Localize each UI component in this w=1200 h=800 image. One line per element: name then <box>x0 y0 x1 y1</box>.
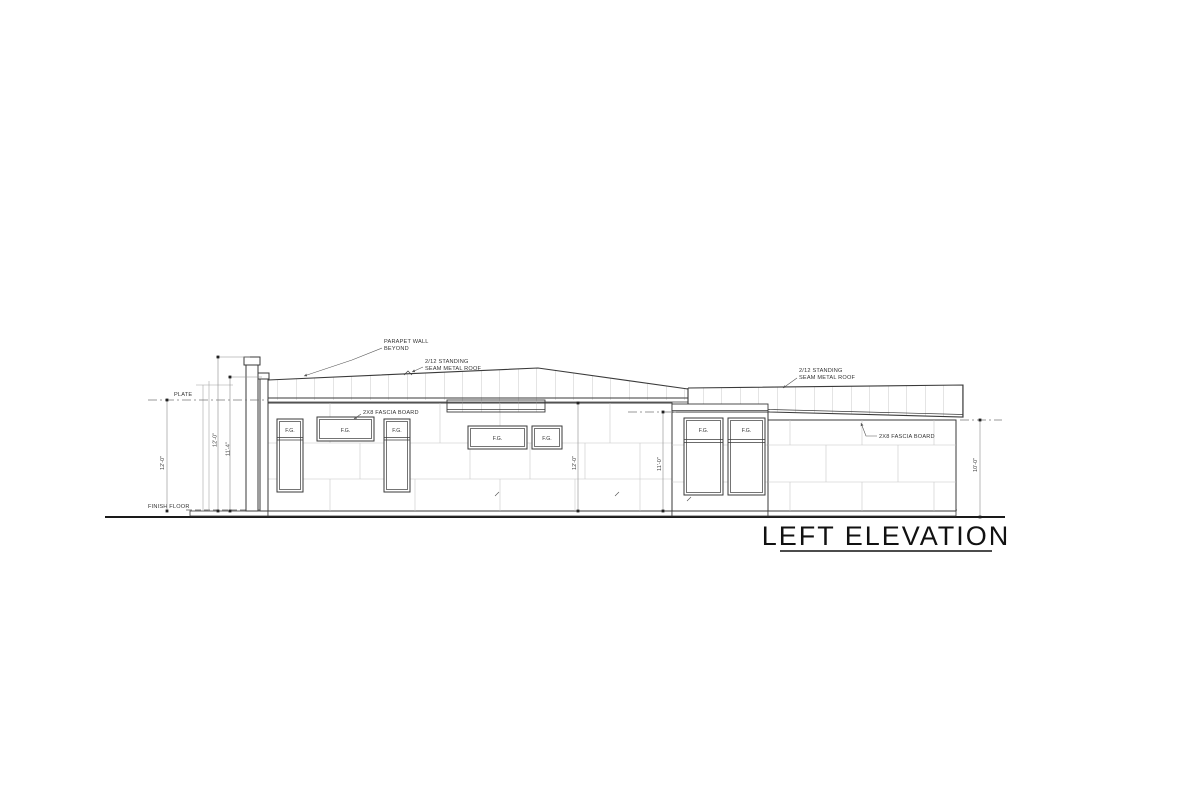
window-tall-1: F.G. <box>277 419 303 492</box>
dim-mid-right-wall: 11'-0" <box>657 457 663 471</box>
mid-right-fascia <box>672 404 768 412</box>
svg-text:SEAM METAL ROOF: SEAM METAL ROOF <box>425 366 482 372</box>
window-label: F.G. <box>542 436 552 442</box>
elevation-drawing: FINISH FLOOR <box>0 0 1200 800</box>
dim-parapet-low: 11'-4" <box>226 442 232 456</box>
parapet-columns <box>244 357 269 511</box>
window-wide-2: F.G. <box>468 426 527 449</box>
svg-text:2X8 FASCIA BOARD: 2X8 FASCIA BOARD <box>363 410 419 416</box>
window-label: F.G. <box>742 428 752 434</box>
window-label: F.G. <box>392 428 402 434</box>
title-text: LEFT ELEVATION <box>762 521 1011 551</box>
dim-plate-height: 12'-0" <box>160 456 166 470</box>
window-label: F.G. <box>285 428 295 434</box>
svg-text:2/12 STANDING: 2/12 STANDING <box>799 368 843 374</box>
plate-label: PLATE <box>174 392 192 398</box>
roof-note-left: 2/12 STANDING SEAM METAL ROOF <box>412 359 482 372</box>
svg-text:2/12 STANDING: 2/12 STANDING <box>425 359 469 365</box>
window-label: F.G. <box>493 436 503 442</box>
left-roof <box>268 368 688 402</box>
window-wide-1: F.G. <box>317 417 374 441</box>
parapet-wall-note: PARAPET WALL BEYOND <box>304 339 429 376</box>
window-tall-2: F.G. <box>384 419 410 492</box>
window-tall-3: F.G. <box>684 418 723 495</box>
svg-text:PARAPET WALL: PARAPET WALL <box>384 339 429 345</box>
dim-right-wall: 10'-0" <box>973 458 979 472</box>
svg-text:2X8 FASCIA BOARD: 2X8 FASCIA BOARD <box>879 434 935 440</box>
wall-base <box>190 511 956 516</box>
window-small-1: F.G. <box>532 426 562 449</box>
svg-text:SEAM METAL ROOF: SEAM METAL ROOF <box>799 375 856 381</box>
dim-mid-wall: 12'-0" <box>572 456 578 470</box>
roof-note-right: 2/12 STANDING SEAM METAL ROOF <box>783 368 856 388</box>
porch-fascia <box>447 400 545 412</box>
dim-parapet-tall: 12'-0" <box>213 433 219 447</box>
window-tall-4: F.G. <box>728 418 765 495</box>
finish-floor-label: FINISH FLOOR <box>148 504 190 510</box>
window-label: F.G. <box>341 428 351 434</box>
svg-text:BEYOND: BEYOND <box>384 346 409 352</box>
drawing-title: LEFT ELEVATION <box>762 521 1011 551</box>
elevation-sheet: FINISH FLOOR <box>0 0 1200 800</box>
window-label: F.G. <box>699 428 709 434</box>
